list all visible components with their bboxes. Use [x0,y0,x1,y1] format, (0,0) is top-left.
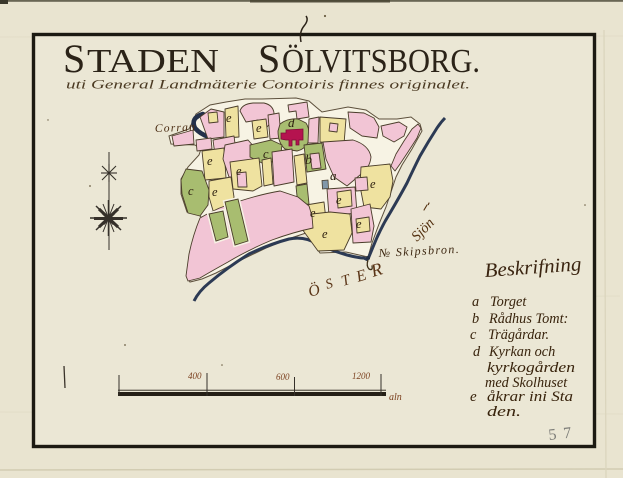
svg-text:S: S [63,36,85,81]
svg-text:Torget: Torget [490,294,527,310]
svg-text:e: e [212,185,218,199]
svg-text:e: e [310,206,316,220]
svg-text:d: d [288,115,295,130]
svg-text:kyrkogården: kyrkogården [487,360,575,376]
svg-text:e: e [470,389,477,405]
svg-text:aln: aln [389,392,402,403]
svg-text:e: e [322,227,328,241]
svg-text:e: e [236,164,242,178]
svg-text:b: b [472,311,479,327]
svg-text:57: 57 [548,424,580,444]
svg-text:c: c [470,327,477,343]
svg-text:600: 600 [276,372,290,382]
svg-text:ÖLVITSBORG.: ÖLVITSBORG. [282,43,480,80]
svg-text:b: b [305,153,312,168]
svg-text:d: d [473,344,481,360]
svg-text:den.: den. [487,404,521,420]
svg-text:TADEN: TADEN [87,43,219,80]
svg-text:e: e [256,121,262,135]
svg-text:e: e [207,154,213,168]
svg-text:Kyrkan och: Kyrkan och [488,344,555,360]
svg-text:400: 400 [188,371,202,381]
svg-text:åkrar ini Sta: åkrar ini Sta [487,389,573,405]
svg-text:S: S [258,36,280,81]
svg-text:Trägårdar.: Trägårdar. [488,327,549,343]
svg-text:Rådhus Tomt:: Rådhus Tomt: [488,311,568,327]
svg-text:Corran: Corran [155,122,196,135]
svg-text:a: a [330,168,337,183]
svg-text:a: a [472,294,479,310]
svg-text:e: e [356,217,362,231]
svg-text:1200: 1200 [352,371,371,381]
svg-text:e: e [336,193,342,207]
svg-text:e: e [226,111,232,125]
svg-text:e: e [370,177,376,191]
svg-text:c: c [188,184,194,198]
svg-text:c: c [263,147,269,161]
svg-text:uti General Landmäterie Contoi: uti General Landmäterie Contoiris finnes… [66,78,470,92]
